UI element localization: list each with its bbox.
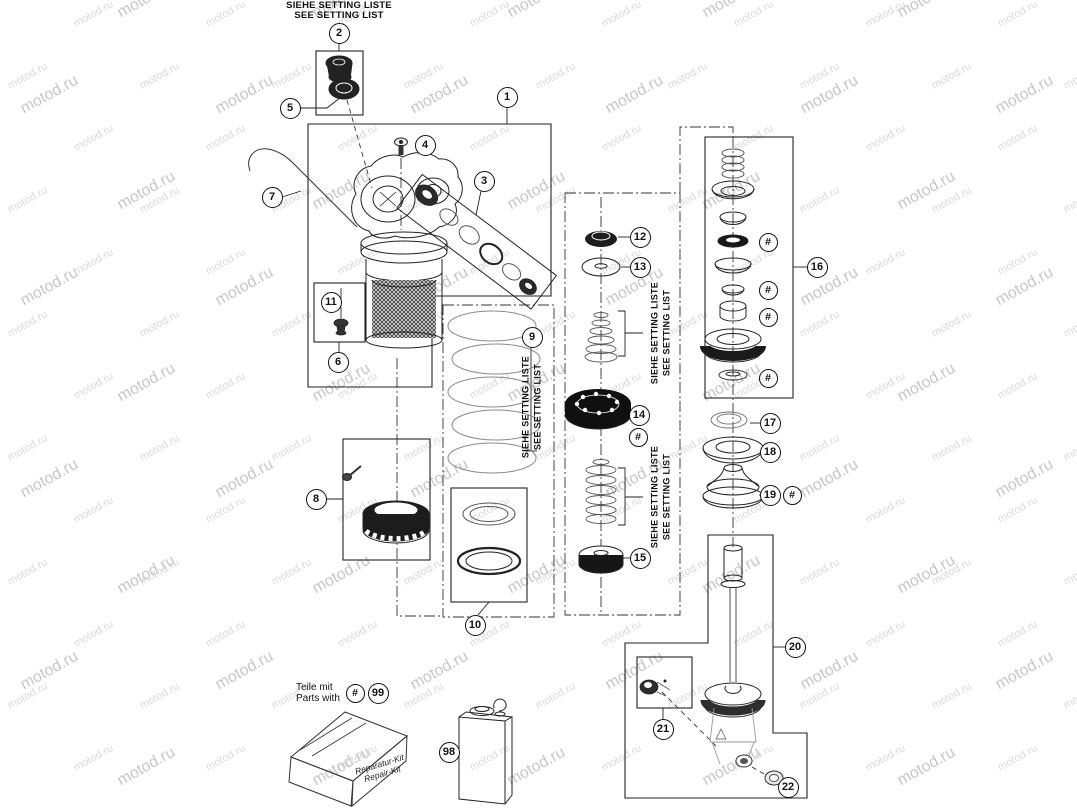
callout-17: 17 [760,413,781,434]
callout-15: 15 [630,548,651,569]
callout-hash-2: # [759,281,778,300]
callout-21: 21 [653,719,674,740]
callout-3: 3 [474,171,495,192]
callout-12: 12 [630,227,651,248]
callout-5: 5 [280,98,301,119]
callout-7: 7 [262,187,283,208]
callout-layer: 123456789101112131415161718192021229899#… [0,0,1077,808]
callout-10: 10 [465,615,486,636]
callout-hash-1: # [759,233,778,252]
callout-18: 18 [760,442,781,463]
callout-1: 1 [497,87,518,108]
callout-22: 22 [778,777,799,798]
callout-2: 2 [329,23,350,44]
callout-hash-3: # [759,308,778,327]
parts-diagram-canvas: motod.rumotod.rumotod.rumotod.rumotod.ru… [0,0,1077,808]
callout-14: 14 [629,405,650,426]
callout-hash-4: # [759,369,778,388]
callout-hash-7: # [346,684,365,703]
callout-8: 8 [306,489,327,510]
callout-20: 20 [785,637,806,658]
callout-4: 4 [415,135,436,156]
callout-hash-5: # [629,428,648,447]
callout-19: 19 [760,485,781,506]
callout-99: 99 [368,683,389,704]
callout-16: 16 [807,257,828,278]
callout-hash-6: # [783,486,802,505]
callout-13: 13 [630,257,651,278]
callout-98: 98 [439,742,460,763]
callout-11: 11 [321,292,342,313]
callout-9: 9 [522,327,543,348]
callout-6: 6 [328,352,349,373]
